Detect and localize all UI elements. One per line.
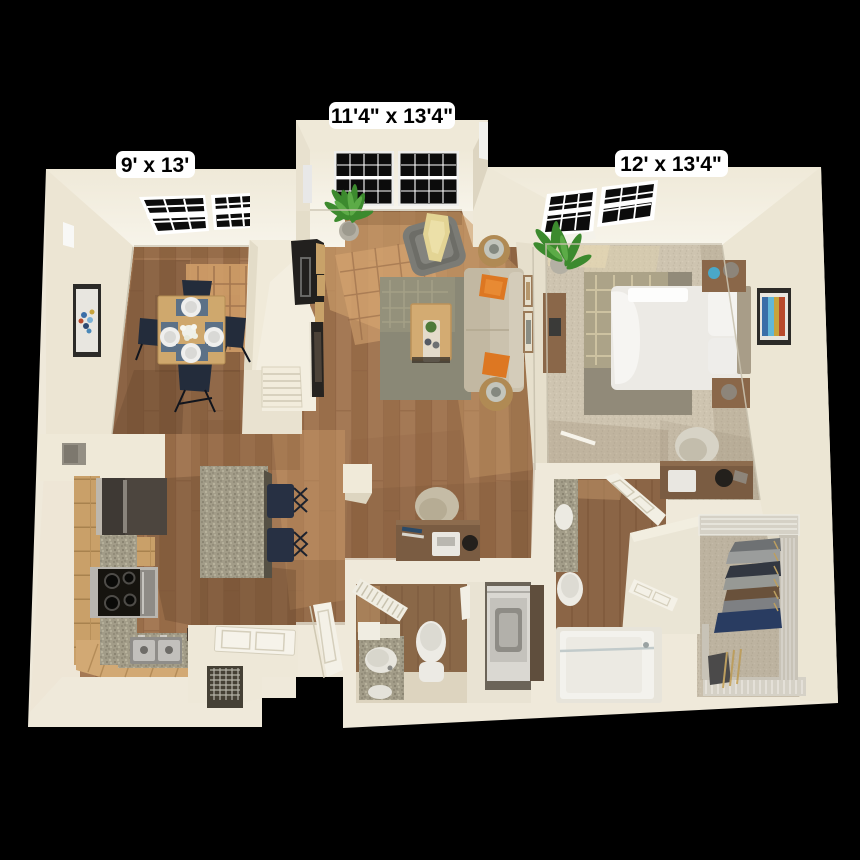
svg-text:11'4" x 13'4": 11'4" x 13'4" [331, 105, 453, 128]
svg-text:9' x 13': 9' x 13' [121, 154, 189, 177]
svg-text:12' x 13'4": 12' x 13'4" [620, 153, 722, 176]
